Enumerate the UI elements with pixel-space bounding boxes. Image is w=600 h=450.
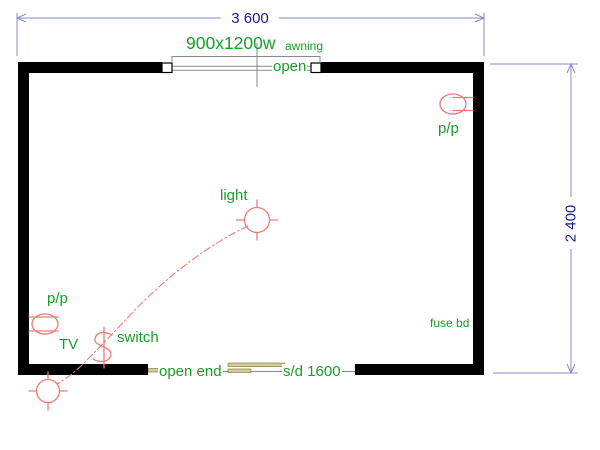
crosshair-light-symbol	[29, 372, 67, 410]
wall-right	[473, 62, 484, 375]
wall-bottom-right-segment	[355, 364, 484, 375]
light-circle	[245, 208, 270, 233]
fuse-board-label: fuse bd	[430, 317, 469, 330]
window-jamb-right	[311, 63, 321, 73]
power-point-right-label: p/p	[438, 121, 459, 138]
window-type-label: awning	[285, 40, 323, 53]
ceiling-light-symbol	[237, 200, 278, 240]
door-open-end-label: open end	[158, 364, 223, 381]
switch-wiring-dashed-arc	[57, 226, 248, 384]
door-spec-label: s/d 1600	[282, 364, 342, 381]
wall-top-left-segment	[18, 62, 162, 73]
switch-symbol	[93, 327, 112, 368]
switch-label: switch	[116, 330, 160, 347]
light-label: light	[220, 188, 248, 205]
door-leaf-upper	[228, 363, 285, 367]
window-size-label: 900x1200w	[186, 34, 276, 53]
dimension-height-label: 2 400	[563, 194, 580, 254]
wall-left	[18, 62, 29, 375]
window-open-label: open	[272, 59, 307, 76]
window-jamb-left	[162, 63, 172, 73]
walls	[18, 62, 484, 375]
power-point-left-label: p/p	[47, 291, 68, 308]
dimension-width-label: 3 600	[220, 10, 280, 27]
wall-top-right-segment	[321, 62, 484, 73]
tv-label: TV	[59, 337, 78, 354]
wall-bottom-left-segment	[18, 364, 148, 375]
power-point-left-symbol	[29, 314, 58, 334]
power-point-right-symbol	[440, 94, 473, 114]
floor-plan-canvas: 3 600 2 400 900x1200w awning open light …	[0, 0, 600, 450]
door-leaf-lower	[228, 369, 251, 373]
crosshair-circle	[37, 380, 60, 403]
